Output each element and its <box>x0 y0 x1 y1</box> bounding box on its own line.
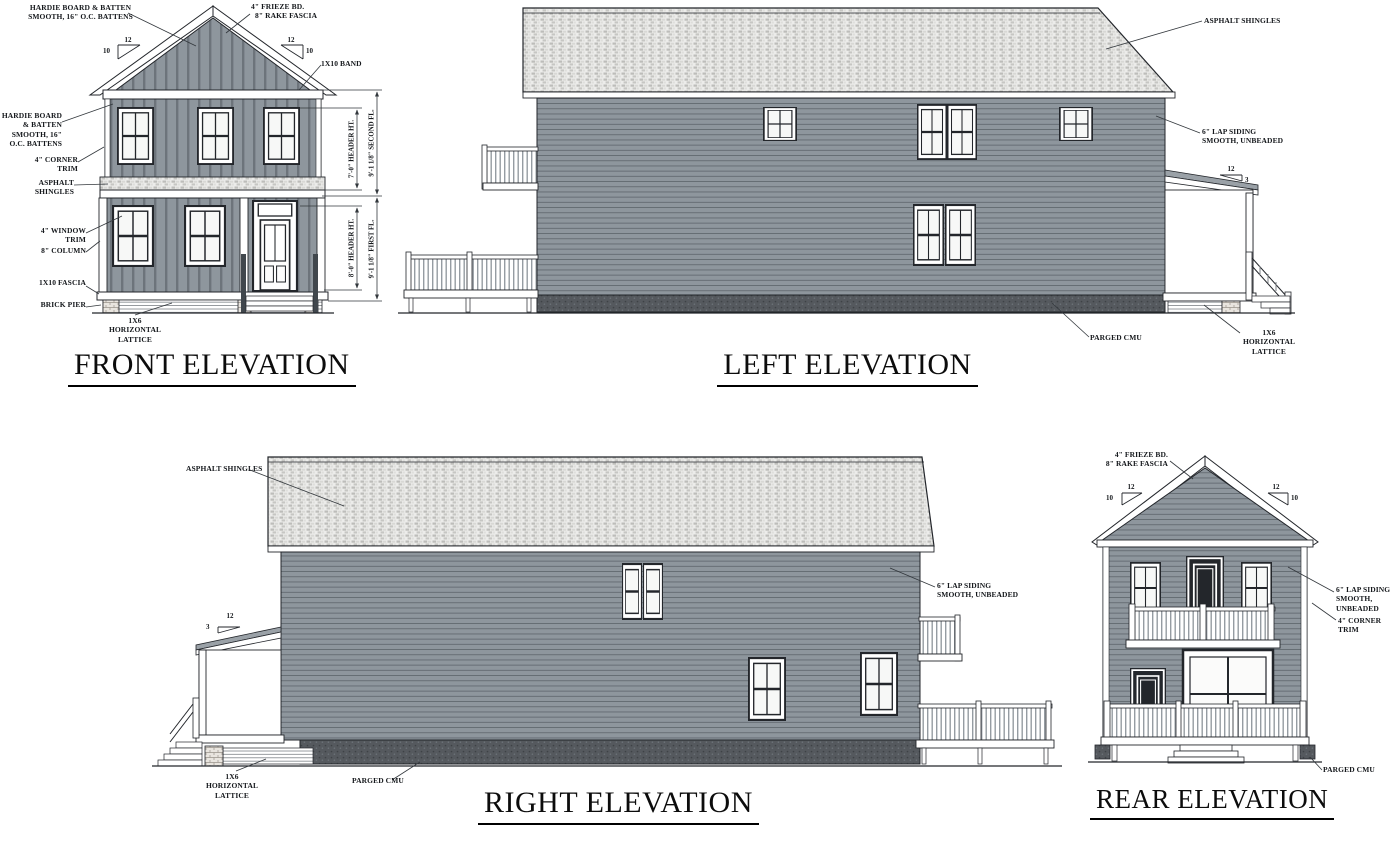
right-elevation-drawing <box>152 457 1062 766</box>
label-lattice-right: 1X6 HORIZONTAL LATTICE <box>202 772 262 800</box>
slope-rise-left-porch: 3 <box>1245 176 1249 184</box>
label-column: 8" COLUMN <box>38 246 86 255</box>
label-lap-siding-rear: 6" LAP SIDING SMOOTH, UNBEADED <box>1336 585 1400 613</box>
label-rake-fascia-rear: 8" RAKE FASCIA <box>1102 459 1168 468</box>
elevation-sheet: HARDIE BOARD & BATTEN SMOOTH, 16" O.C. B… <box>0 0 1400 846</box>
elevations-drawing <box>0 0 1400 846</box>
dim-second-floor: 9'-1 1/8" SECOND FL. <box>369 109 376 176</box>
dim-second-header: 7'-0" HEADER HT. <box>349 120 356 178</box>
label-window-trim: 4" WINDOW TRIM <box>24 226 86 245</box>
slope-run-rear-right: 12 <box>1267 483 1285 491</box>
label-frieze-front: 4" FRIEZE BD. <box>251 2 304 11</box>
slope-rise-front-left: 10 <box>103 47 110 55</box>
slope-run-rear-left: 12 <box>1122 483 1140 491</box>
left-elevation-title: LEFT ELEVATION <box>715 348 980 387</box>
label-fascia: 1X10 FASCIA <box>30 278 86 287</box>
label-asphalt-shingles-front: ASPHALT SHINGLES <box>12 178 74 197</box>
label-corner-trim-rear: 4" CORNER TRIM <box>1338 616 1400 635</box>
slope-rise-rear-right: 10 <box>1291 494 1298 502</box>
label-lattice-front: 1X6 HORIZONTAL LATTICE <box>104 316 166 344</box>
label-asphalt-shingles-right: ASPHALT SHINGLES <box>186 464 262 473</box>
label-parged-cmu-rear: PARGED CMU <box>1323 765 1375 774</box>
slope-run-front-left: 12 <box>119 36 137 44</box>
label-parged-cmu-left: PARGED CMU <box>1090 333 1142 342</box>
dim-first-floor: 9'-1 1/8" FIRST FL. <box>369 220 376 279</box>
label-asphalt-shingles-left: ASPHALT SHINGLES <box>1204 16 1280 25</box>
label-rake-fascia-front: 8" RAKE FASCIA <box>255 11 317 20</box>
rear-elevation-title: REAR ELEVATION <box>1090 784 1330 820</box>
label-lap-siding-right: 6" LAP SIDING SMOOTH, UNBEADED <box>937 581 1018 600</box>
label-parged-cmu-right: PARGED CMU <box>352 776 404 785</box>
slope-run-front-right: 12 <box>282 36 300 44</box>
front-elevation-drawing <box>90 6 336 313</box>
label-brick-pier: BRICK PIER <box>38 300 86 309</box>
label-lattice-left: 1X6 HORIZONTAL LATTICE <box>1240 328 1298 356</box>
right-elevation-title: RIGHT ELEVATION <box>478 786 738 825</box>
slope-rise-right-porch: 3 <box>206 623 210 631</box>
label-lap-siding-left: 6" LAP SIDING SMOOTH, UNBEADED <box>1202 127 1283 146</box>
rear-elevation-drawing <box>1088 456 1322 763</box>
label-band: 1X10 BAND <box>321 59 362 68</box>
label-corner-trim-front: 4" CORNER TRIM <box>22 155 78 174</box>
dim-first-header: 8'-0" HEADER HT. <box>349 219 356 277</box>
slope-run-right-porch: 12 <box>221 612 239 620</box>
label-board-batten-gable: HARDIE BOARD & BATTEN SMOOTH, 16" O.C. B… <box>28 3 133 22</box>
left-elevation-drawing <box>398 8 1295 314</box>
slope-rise-front-right: 10 <box>306 47 313 55</box>
slope-rise-rear-left: 10 <box>1106 494 1113 502</box>
front-elevation-title: FRONT ELEVATION <box>68 348 338 387</box>
slope-run-left-porch: 12 <box>1222 165 1240 173</box>
label-board-batten-wall: HARDIE BOARD & BATTEN SMOOTH, 16" O.C. B… <box>0 111 62 149</box>
label-frieze-rear: 4" FRIEZE BD. <box>1106 450 1168 459</box>
